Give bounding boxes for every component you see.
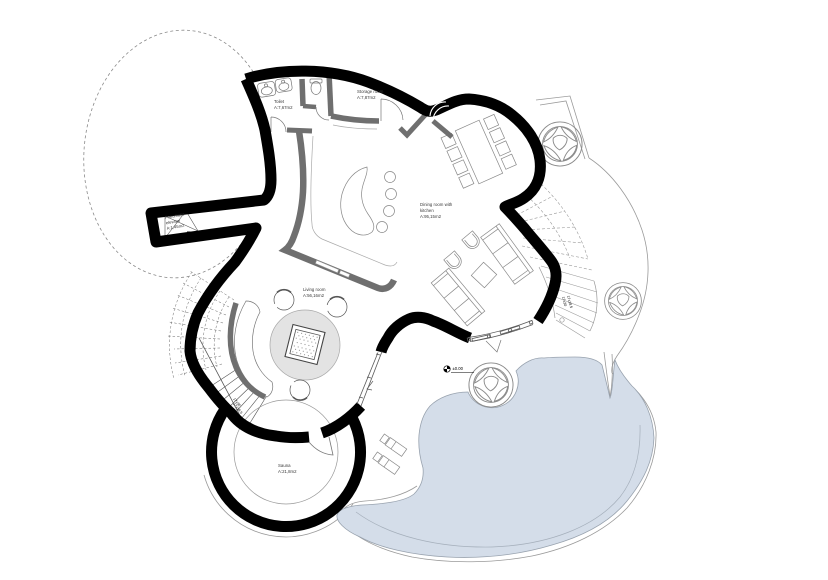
- svg-text:Dining room with: Dining room with: [420, 202, 453, 207]
- svg-text:A:56,16m2: A:56,16m2: [303, 293, 325, 298]
- svg-text:Sauna: Sauna: [278, 463, 291, 468]
- svg-text:kitchen: kitchen: [420, 208, 434, 213]
- svg-text:±0.00: ±0.00: [453, 366, 464, 371]
- svg-text:A:7,87m2: A:7,87m2: [357, 95, 376, 100]
- svg-text:Storage room: Storage room: [357, 89, 384, 94]
- svg-text:A:95,15m2: A:95,15m2: [420, 214, 442, 219]
- svg-text:A:21,8m2: A:21,8m2: [278, 469, 297, 474]
- svg-text:Toilet: Toilet: [274, 99, 285, 104]
- svg-text:Living room: Living room: [303, 287, 326, 292]
- svg-text:A:7,67m2: A:7,67m2: [274, 105, 293, 110]
